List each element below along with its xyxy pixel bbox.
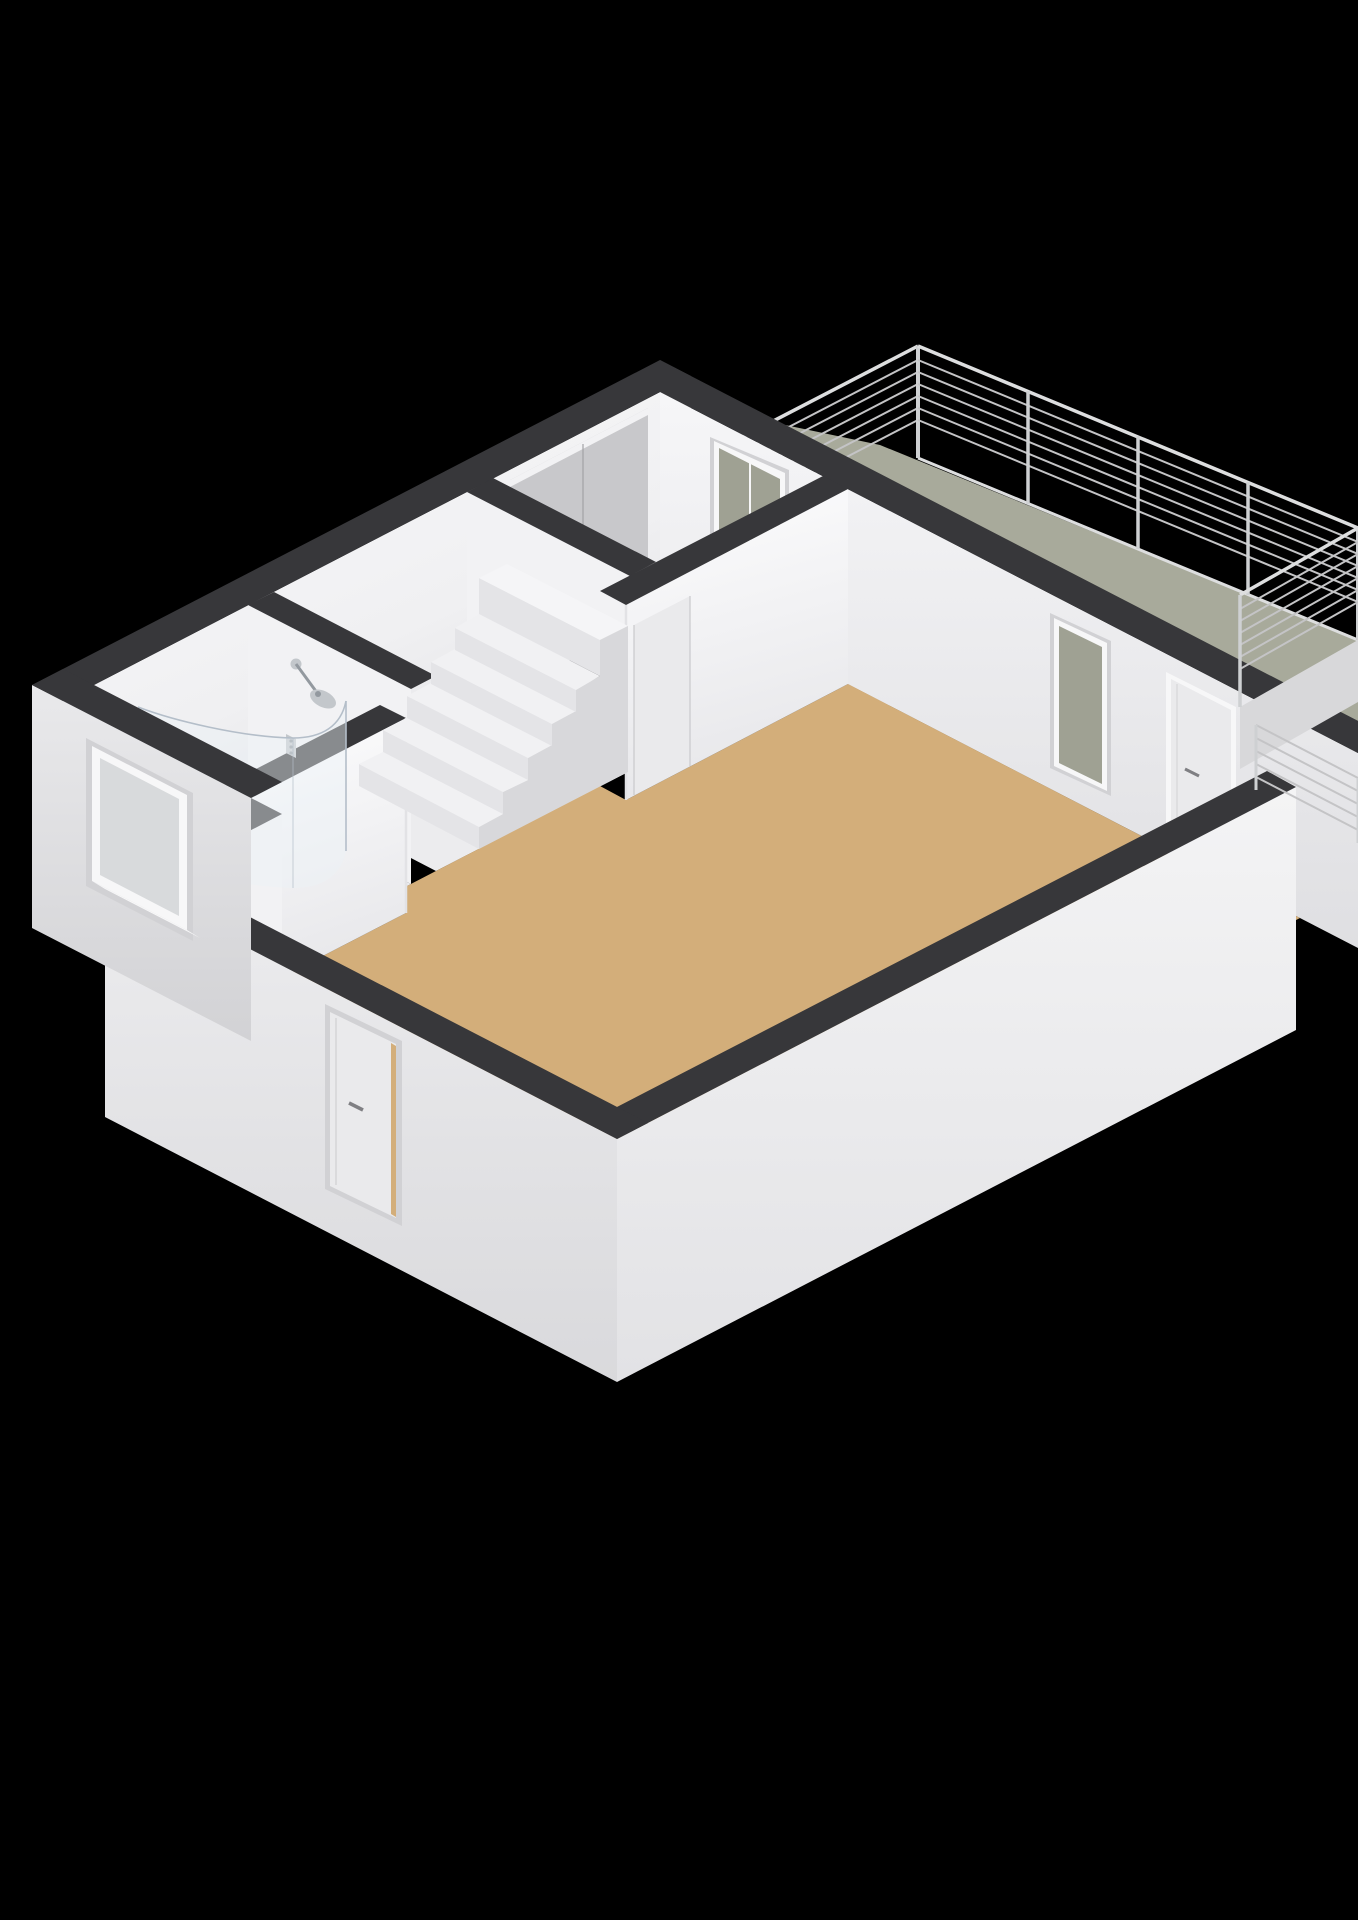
floorplan-3d-render [0,0,1358,1920]
entry-door-leaf [330,1012,396,1218]
living-room-window-pane [1059,626,1102,784]
floorplan-canvas [0,0,1358,1920]
entry-door-ajar-gap [391,1043,396,1217]
hall-door-leaf [634,596,690,795]
shower-head-joint [315,691,321,697]
